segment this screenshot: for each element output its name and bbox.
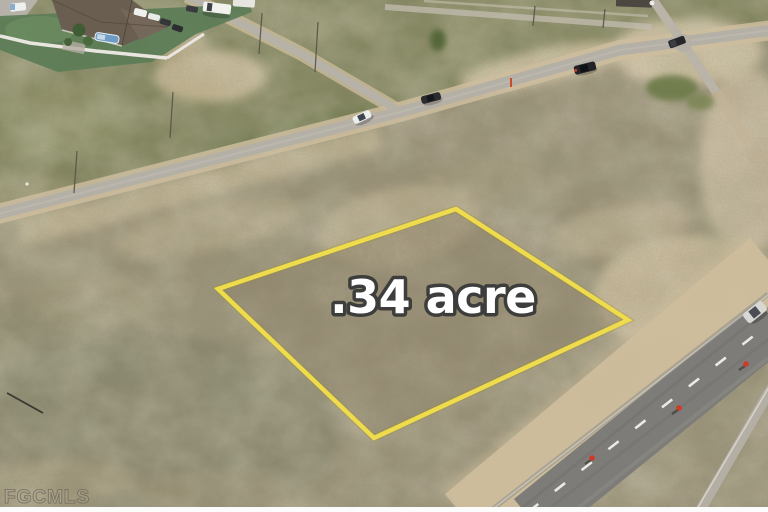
watermark: FGCMLS: [4, 487, 90, 508]
palm-tree: [64, 38, 72, 46]
palm-tree: [73, 24, 86, 37]
parked-truck-cab: [10, 4, 15, 10]
bottom-white-bar: [0, 507, 768, 512]
aerial-photo: .34 acre FGCMLS: [0, 0, 768, 512]
far-structure: [616, 0, 652, 8]
bush: [430, 29, 446, 51]
far-parked-car: [650, 1, 655, 6]
grass-tuft: [686, 94, 714, 110]
white-debris-dot: [25, 182, 28, 185]
aerial-photo-canvas: .34 acre FGCMLS: [0, 0, 768, 512]
parcel-size-label: .34 acre: [330, 270, 536, 324]
palm-tree: [83, 36, 93, 46]
